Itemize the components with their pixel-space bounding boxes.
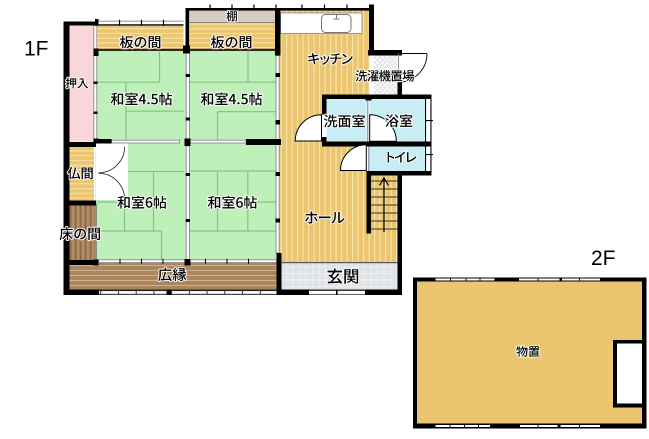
svg-text:2F: 2F bbox=[591, 247, 616, 270]
svg-text:1F: 1F bbox=[24, 38, 49, 61]
